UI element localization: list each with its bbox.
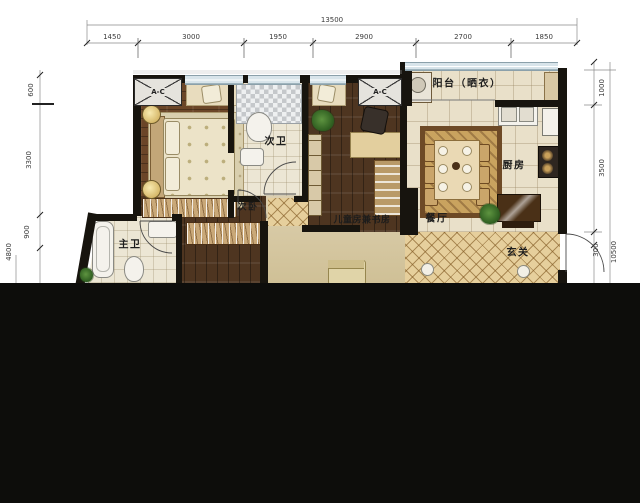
wall-dining-pier	[400, 188, 418, 235]
floorplan-canvas: A-C A-C	[0, 0, 640, 503]
kitchen-cabinet	[497, 194, 541, 222]
table-centerpiece	[452, 162, 460, 170]
sofa-back	[328, 260, 364, 269]
wall-bath2-bottom-right	[294, 196, 308, 202]
wall-bed-bath2-lower	[228, 190, 234, 218]
wall-bath2-kids	[302, 83, 308, 196]
bathroom-sink	[240, 148, 264, 166]
room-label-dining: 餐厅	[426, 210, 449, 225]
dim-right-seg: 3500	[598, 159, 606, 177]
balcony-cabinet	[544, 72, 559, 101]
nightstand-lamp	[142, 180, 161, 199]
nightstand-lamp	[142, 105, 161, 124]
dim-left-total: 4800	[5, 243, 13, 261]
dim-total-top: 13500	[321, 16, 343, 24]
wall-bed-bath2-upper	[228, 83, 234, 153]
washing-machine-door	[410, 77, 426, 93]
dim-top-seg: 1950	[269, 33, 287, 41]
place-setting	[462, 182, 472, 192]
dim-right-seg: 1000	[598, 79, 606, 97]
black-masked-region	[0, 283, 640, 503]
plant-icon	[312, 110, 334, 131]
place-setting	[438, 164, 448, 174]
dim-top-seg: 3000	[182, 33, 200, 41]
dim-left-seg: 600	[27, 83, 35, 96]
wardrobe-hangers-top	[142, 198, 237, 218]
entry-stool	[421, 263, 434, 276]
ac-unit-label: A-C	[149, 88, 166, 96]
room-label-bath2: 次卫	[265, 133, 288, 148]
room-label-entry: 玄关	[507, 244, 530, 259]
bed-pillow	[165, 121, 180, 155]
ac-unit-box-left: A-C	[134, 78, 182, 106]
bay-window-bedroom	[185, 75, 243, 85]
place-setting	[438, 146, 448, 156]
wall-kitchen-top	[495, 100, 560, 107]
kitchen-sink-basin	[501, 107, 517, 122]
wall-right-lower	[558, 270, 567, 283]
wall-masterbath-right	[176, 214, 182, 283]
kitchen-sink-basin	[519, 107, 534, 122]
dim-top-seg: 2900	[355, 33, 373, 41]
dim-right-seg: 300	[592, 243, 600, 256]
ac-unit-label: A-C	[371, 88, 388, 96]
place-setting	[438, 182, 448, 192]
stove-burner	[542, 163, 553, 174]
kitchen-cabinet-base	[502, 221, 534, 228]
room-label-balcony: 阳台（晒衣）	[433, 75, 502, 90]
entry-stool	[517, 265, 530, 278]
room-label-bed2: 次卧	[237, 200, 258, 213]
pillow-icon	[317, 84, 337, 104]
bathroom-sink	[148, 221, 177, 238]
toilet	[124, 256, 144, 282]
office-chair	[360, 106, 390, 136]
bay-window-kids	[310, 75, 346, 85]
room-label-bath1: 主卫	[119, 236, 142, 251]
wall-masterbath-top-left	[95, 214, 137, 221]
dim-left-seg: 3300	[25, 151, 33, 169]
stove-burner	[542, 150, 553, 161]
balcony-glazing	[405, 62, 558, 71]
daybed	[374, 160, 401, 216]
bathtub-inner	[96, 226, 110, 272]
wall-right-upper	[558, 68, 567, 234]
pillow-icon	[201, 84, 222, 104]
ac-unit-box-right: A-C	[358, 78, 402, 106]
dim-top-seg: 2700	[454, 33, 472, 41]
dim-right-total: 10500	[610, 241, 618, 263]
plant-icon	[480, 204, 500, 224]
dim-left-seg: 900	[23, 225, 31, 238]
window-bath2	[248, 75, 300, 85]
plant-icon	[80, 268, 93, 282]
place-setting	[462, 164, 472, 174]
bed-pillow	[165, 157, 180, 191]
dim-top-seg: 1850	[535, 33, 553, 41]
dim-top-seg: 1450	[103, 33, 121, 41]
wall-closet-corridor	[260, 221, 268, 283]
room-label-kitchen: 厨房	[503, 157, 526, 172]
bookshelf	[308, 134, 322, 216]
wardrobe-hangers-bottom	[186, 222, 264, 245]
place-setting	[462, 146, 472, 156]
room-label-kids: 儿童房兼书房	[333, 213, 390, 226]
fridge	[542, 108, 559, 136]
wall-kids-bottom	[302, 225, 360, 232]
desk	[350, 132, 404, 158]
